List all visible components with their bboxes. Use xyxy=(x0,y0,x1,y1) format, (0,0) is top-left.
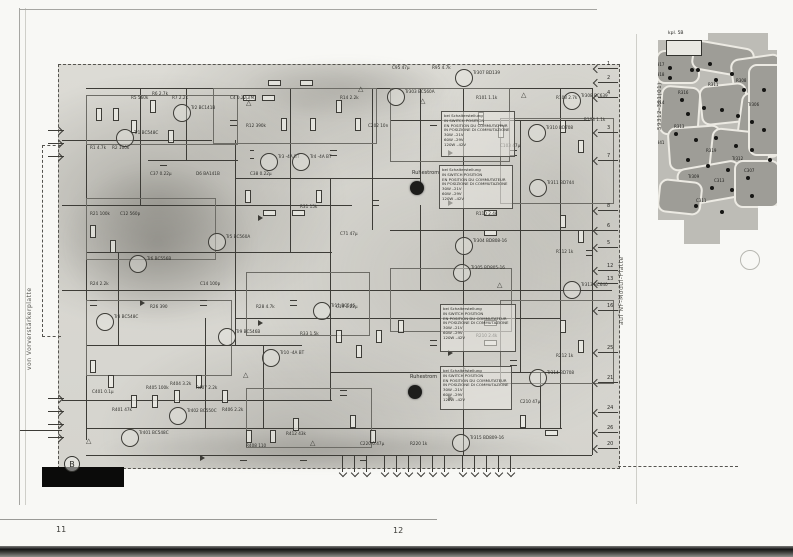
resistor-symbol xyxy=(560,215,566,228)
transistor-label: Tr8 BC548C xyxy=(114,315,148,320)
component-label: C71 47µ xyxy=(340,232,370,237)
connector-pin-arrow xyxy=(459,469,467,477)
pcb-pad xyxy=(686,158,690,162)
resistor-symbol xyxy=(174,390,180,403)
transistor-label: Tr4 -4A BT xyxy=(310,155,344,160)
diode-symbol xyxy=(258,215,263,221)
transistor-symbol xyxy=(169,407,187,425)
resistor-symbol xyxy=(90,225,96,238)
pcb-pad xyxy=(702,106,706,110)
page-number-left: 11 xyxy=(56,525,66,534)
resistor-symbol xyxy=(578,230,584,243)
connector-pin-number: 12 xyxy=(607,263,613,269)
component-label: R110 2.4k xyxy=(476,212,506,217)
transistor-label: Tr303 BC560A xyxy=(405,90,439,95)
capacitor-symbol xyxy=(430,120,437,126)
transistor-label: Tr401 BC548C xyxy=(139,431,173,436)
pcb-pad xyxy=(668,66,672,70)
resistor-symbol xyxy=(520,415,526,428)
pcb-scan-ring-artifact xyxy=(740,250,760,270)
capacitor-symbol xyxy=(372,200,379,206)
connector-pin-arrow xyxy=(471,469,479,477)
resistor-symbol xyxy=(222,390,228,403)
connector-pin-number: 1 xyxy=(607,61,610,67)
connector-pin-number: 25 xyxy=(607,345,613,351)
diode-symbol xyxy=(140,300,145,306)
warning-triangle-icon: △ xyxy=(497,282,502,289)
component-label: C401 0.1µ xyxy=(92,390,122,395)
pcb-connector-label: kpl. 5B xyxy=(668,31,684,36)
resistor-symbol xyxy=(263,210,276,216)
connector-pin-arrow xyxy=(351,469,359,477)
component-label: R33 1.5k xyxy=(300,332,330,337)
connector-pin-arrow xyxy=(495,469,503,477)
capacitor-symbol xyxy=(160,160,167,166)
connector-pin-arrow xyxy=(593,65,601,73)
component-label: R103 2.7k xyxy=(556,96,586,101)
transistor-symbol xyxy=(387,88,405,106)
resistor-symbol xyxy=(245,190,251,203)
switch-position-note: bei SchalterstellungIN SWITCH POSITIONEN… xyxy=(440,304,516,352)
component-label: C202 10n xyxy=(368,124,398,129)
warning-triangle-icon: △ xyxy=(246,100,251,107)
transistor-symbol xyxy=(455,237,473,255)
component-label: R212 1k xyxy=(556,354,586,359)
note-voltage-line: 120W –42V xyxy=(442,197,510,202)
transistor-label: Tr402 BC550C xyxy=(187,409,221,414)
resistor-symbol xyxy=(316,190,322,203)
connector-pin-arrow xyxy=(593,267,601,275)
transistor-symbol xyxy=(218,328,236,346)
connector-pin-arrow xyxy=(593,79,601,87)
component-label: R406 2.2k xyxy=(222,408,252,413)
scanned-service-manual-page: Tr1 BC548CTr2 BC141BTr3 -4A BTTr4 -4A BT… xyxy=(0,0,793,557)
bias-trimmer-symbol xyxy=(410,181,424,195)
transistor-label: Tr6 BC556B xyxy=(147,257,181,262)
transistor-symbol xyxy=(455,69,473,87)
resistor-symbol xyxy=(246,430,252,443)
pcb-part-label: R311 xyxy=(708,82,718,87)
connector-pin-arrow xyxy=(429,469,437,477)
transistor-label: Tr314 BD708 xyxy=(547,371,581,376)
component-label: R7 2.2k xyxy=(172,96,202,101)
resistor-symbol xyxy=(168,130,174,143)
transistor-symbol xyxy=(563,281,581,299)
connector-pin-arrow xyxy=(593,207,601,215)
transistor-symbol xyxy=(529,179,547,197)
transistor-symbol xyxy=(96,313,114,331)
pcb-pad xyxy=(680,98,684,102)
connector-pin-number: 3 xyxy=(607,125,610,131)
wire xyxy=(86,455,592,456)
connector-pin-number: 7 xyxy=(607,153,610,159)
component-label: R31 15k xyxy=(300,205,330,210)
connector-pin-arrow xyxy=(55,408,63,416)
bias-trimmer-symbol xyxy=(408,385,422,399)
capacitor-symbol xyxy=(90,300,97,306)
section-mark-b: B xyxy=(64,456,80,472)
diode-symbol xyxy=(258,320,263,326)
label-to-af-module-board: auf NF-Modul-Platte xyxy=(618,205,625,325)
connector-pin-number: 4 xyxy=(607,90,610,96)
pcb-part-label: C311 xyxy=(696,198,706,203)
pcb-trace xyxy=(656,178,703,216)
diode-symbol xyxy=(200,455,205,461)
transistor-symbol xyxy=(528,124,546,142)
resistor-symbol xyxy=(376,330,382,343)
pcb-pad xyxy=(720,210,724,214)
connector-pin-arrow xyxy=(363,469,371,477)
wire xyxy=(20,430,62,431)
capacitor-symbol xyxy=(340,390,347,396)
transistor-label: Tr315 BD809-16 xyxy=(470,436,504,441)
transistor-label: Tr1 BC548C xyxy=(134,131,168,136)
connector-pin-number: 26 xyxy=(607,425,613,431)
resistor-symbol xyxy=(300,80,313,86)
transistor-label: Tr5 BC560A xyxy=(226,235,260,240)
resistor-symbol xyxy=(355,118,361,131)
transistor-label: Tr10 -4A BT xyxy=(280,351,314,356)
resistor-symbol xyxy=(110,240,116,253)
connector-pin-arrow xyxy=(593,227,601,235)
connector-pin-arrow xyxy=(381,469,389,477)
resistor-symbol xyxy=(150,100,156,113)
circuit-block-outline xyxy=(86,198,216,260)
capacitor-symbol xyxy=(586,250,593,256)
connector-pin-arrow xyxy=(339,469,347,477)
pcb-pad xyxy=(742,88,746,92)
resistor-symbol xyxy=(578,340,584,353)
transistor-symbol xyxy=(313,302,331,320)
connector-pin-arrow xyxy=(55,140,63,148)
component-label: R26 390 xyxy=(150,305,180,310)
connector-pin-arrow xyxy=(55,421,63,429)
wire xyxy=(235,178,420,179)
component-label: D6 BA141B xyxy=(196,172,226,177)
resistor-symbol xyxy=(152,395,158,408)
wire xyxy=(86,100,87,440)
connector-pin-arrow xyxy=(483,469,491,477)
transistor-label: Tr311 BD744 xyxy=(547,181,581,186)
capacitor-symbol xyxy=(250,150,254,159)
component-label: C19 0.22µ xyxy=(336,305,366,310)
component-label: R412 43k xyxy=(286,432,316,437)
resistor-symbol xyxy=(270,430,276,443)
transistor-label: Tr9 BC546B xyxy=(236,330,270,335)
connector-pin-arrow xyxy=(417,469,425,477)
pcb-pad xyxy=(726,168,730,172)
component-label: R104 1.1k xyxy=(584,118,614,123)
switch-position-note: bei SchalterstellungIN SWITCH POSITIONEN… xyxy=(441,111,515,157)
transistor-symbol xyxy=(453,264,471,282)
warning-triangle-icon: △ xyxy=(310,440,315,447)
pcb-pad xyxy=(708,62,712,66)
component-label: R28 4.7k xyxy=(256,305,286,310)
transistor-symbol xyxy=(260,153,278,171)
connector-pin-arrow xyxy=(593,445,601,453)
warning-triangle-icon: △ xyxy=(521,92,526,99)
component-label: C95 47µ xyxy=(392,66,422,71)
pcb-pad xyxy=(690,68,694,72)
component-label: R401 47k xyxy=(112,408,142,413)
pcb-pad xyxy=(730,188,734,192)
pcb-traces-layer: R317R318R316R314R311R308R313R341R319Tr31… xyxy=(650,28,793,273)
component-label: R220 1k xyxy=(410,442,440,447)
transistor-symbol xyxy=(208,233,226,251)
warning-triangle-icon: △ xyxy=(86,438,91,445)
component-label: R24 2.2k xyxy=(90,282,120,287)
resistor-symbol xyxy=(310,118,316,131)
resistor-symbol xyxy=(90,360,96,373)
connector-pin-arrow xyxy=(55,153,63,161)
component-label: R95 4.7k xyxy=(432,66,462,71)
transistor-symbol xyxy=(529,369,547,387)
connector-pin-number: 24 xyxy=(607,405,613,411)
wire xyxy=(235,140,236,345)
resistor-symbol xyxy=(578,140,584,153)
component-label: R14 2.2k xyxy=(340,96,370,101)
capacitor-symbol xyxy=(430,340,437,346)
transistor-symbol xyxy=(173,104,191,122)
pcb-pad xyxy=(750,194,754,198)
connector-pin-arrow xyxy=(593,244,601,252)
warning-triangle-icon: △ xyxy=(358,86,363,93)
capacitor-symbol xyxy=(230,120,237,126)
pcb-pad xyxy=(714,136,718,140)
component-label: R101 1.1k xyxy=(476,96,506,101)
component-label: C220 0.47µ xyxy=(360,442,390,447)
resistor-symbol xyxy=(398,320,404,333)
resistor-symbol xyxy=(262,95,275,101)
circuit-block-outline xyxy=(86,300,232,376)
resistor-symbol xyxy=(350,415,356,428)
connector-pin-arrow xyxy=(441,469,449,477)
capacitor-symbol xyxy=(290,300,297,306)
pcb-board-number: 59312-321(01) xyxy=(657,50,663,130)
connector-pin-number: 8 xyxy=(607,203,610,209)
resistor-symbol xyxy=(336,330,342,343)
transistor-symbol xyxy=(262,349,280,367)
component-label: C12 560p xyxy=(120,212,150,217)
pcb-pad xyxy=(696,68,700,72)
pcb-layout-fragment: R317R318R316R314R311R308R313R341R319Tr31… xyxy=(650,28,793,273)
connector-pin-number: 20 xyxy=(607,441,613,447)
transistor-symbol xyxy=(129,255,147,273)
component-label: R405 100k xyxy=(146,386,176,391)
connector-pin-number: 21 xyxy=(607,375,613,381)
connector-pin-arrow xyxy=(55,127,63,135)
pcb-pad xyxy=(750,120,754,124)
page-number-right: 12 xyxy=(393,526,403,535)
pcb-pad xyxy=(674,132,678,136)
pcb-part-label: R316 xyxy=(678,90,688,95)
connector-pin-arrow xyxy=(55,395,63,403)
component-label: R5 560k xyxy=(131,96,161,101)
resistor-symbol xyxy=(113,108,119,121)
bias-trimmer-label: Ruhestrom xyxy=(410,375,444,381)
transistor-label: Tr305 BD805-16 xyxy=(471,266,505,271)
resistor-symbol xyxy=(356,345,362,358)
connector-pin-arrow xyxy=(393,469,401,477)
pcb-pad xyxy=(746,176,750,180)
pcb-pad xyxy=(736,114,740,118)
pcb-pad xyxy=(720,108,724,112)
resistor-symbol xyxy=(560,320,566,333)
resistor-symbol xyxy=(96,108,102,121)
pcb-part-label: R313 xyxy=(674,124,684,129)
label-from-preamp-board: von Vorverstärkerplatte xyxy=(26,240,33,370)
component-label: C37 0.22µ xyxy=(150,172,180,177)
component-label: R408 110 xyxy=(246,444,276,449)
pcb-pad xyxy=(686,112,690,116)
capacitor-symbol xyxy=(300,455,307,461)
pcb-pad xyxy=(762,88,766,92)
connector-pin-number: 5 xyxy=(607,240,610,246)
resistor-symbol xyxy=(293,418,299,431)
component-label: C38 0.22µ xyxy=(250,172,280,177)
capacitor-symbol xyxy=(240,455,247,461)
switch-position-note: bei SchalterstellungIN SWITCH POSITIONEN… xyxy=(440,366,512,410)
pcb-trace xyxy=(748,64,786,156)
connector-pin-arrow xyxy=(593,429,601,437)
transistor-symbol xyxy=(292,153,310,171)
component-label: R2 100k xyxy=(112,146,142,151)
connector-pin-number: 16 xyxy=(607,303,613,309)
pcb-pad xyxy=(694,204,698,208)
capacitor-symbol xyxy=(200,300,207,306)
pcb-trace xyxy=(734,160,780,208)
pcb-part-label: Tr312 xyxy=(732,156,743,161)
resistor-symbol xyxy=(268,80,281,86)
warning-triangle-icon: △ xyxy=(420,98,425,105)
pcb-part-label: Tr309 xyxy=(688,174,699,179)
transistor-label: Tr310 BD708 xyxy=(546,126,580,131)
pcb-pad xyxy=(706,164,710,168)
component-label: C4 0.22µ(M) xyxy=(230,96,260,101)
resistor-symbol xyxy=(336,100,342,113)
transistor-symbol xyxy=(452,434,470,452)
component-label: R407 2.2k xyxy=(196,386,226,391)
transistor-label: Tr307 BD139 xyxy=(473,71,507,76)
pcb-part-label: R308 xyxy=(736,78,746,83)
pcb-pad xyxy=(668,76,672,80)
transistor-label: Tr2 BC141B xyxy=(191,106,225,111)
resistor-symbol xyxy=(484,230,497,236)
component-label: R21 100k xyxy=(90,212,120,217)
component-label: C14 100p xyxy=(200,282,230,287)
component-label: R12 390k xyxy=(246,124,276,129)
resistor-symbol xyxy=(545,430,558,436)
pcb-part-label: Tr306 xyxy=(748,102,759,107)
switch-position-note: bei SchalterstellungIN SWITCH POSITIONEN… xyxy=(439,165,513,209)
pcb-part-label: C307 xyxy=(744,168,754,173)
connector-pin-arrow xyxy=(507,469,515,477)
pcb-pad xyxy=(750,148,754,152)
component-label: C210 47µ xyxy=(520,400,550,405)
pcb-pad xyxy=(768,158,772,162)
pcb-connector-outline xyxy=(666,40,702,56)
pcb-pad xyxy=(694,138,698,142)
component-label: R112 1k xyxy=(556,250,586,255)
pcb-pad xyxy=(730,72,734,76)
pcb-pad xyxy=(710,186,714,190)
note-voltage-line: 120W –42V xyxy=(443,398,509,403)
resistor-symbol xyxy=(108,375,114,388)
pcb-part-label: R319 xyxy=(706,148,716,153)
note-voltage-line: 120W –42V xyxy=(444,143,512,148)
note-voltage-line: 120W –42V xyxy=(443,336,513,341)
connector-pin-number: 6 xyxy=(607,223,610,229)
transistor-symbol xyxy=(121,429,139,447)
connector-pin-arrow xyxy=(593,409,601,417)
connector-pin-number: 2 xyxy=(607,75,610,81)
transistor-label: Tr304 BD808-16 xyxy=(473,239,507,244)
connector-pin-arrow xyxy=(55,434,63,442)
pcb-pad xyxy=(734,144,738,148)
resistor-symbol xyxy=(281,118,287,131)
warning-triangle-icon: △ xyxy=(243,372,248,379)
pcb-part-label: R341 xyxy=(654,140,664,145)
pcb-pad xyxy=(762,128,766,132)
resistor-symbol xyxy=(292,210,305,216)
pcb-part-label: C313 xyxy=(714,178,724,183)
redaction-bar xyxy=(42,467,124,487)
connector-pin-arrow xyxy=(405,469,413,477)
connector-pin-number: 13 xyxy=(607,276,613,282)
